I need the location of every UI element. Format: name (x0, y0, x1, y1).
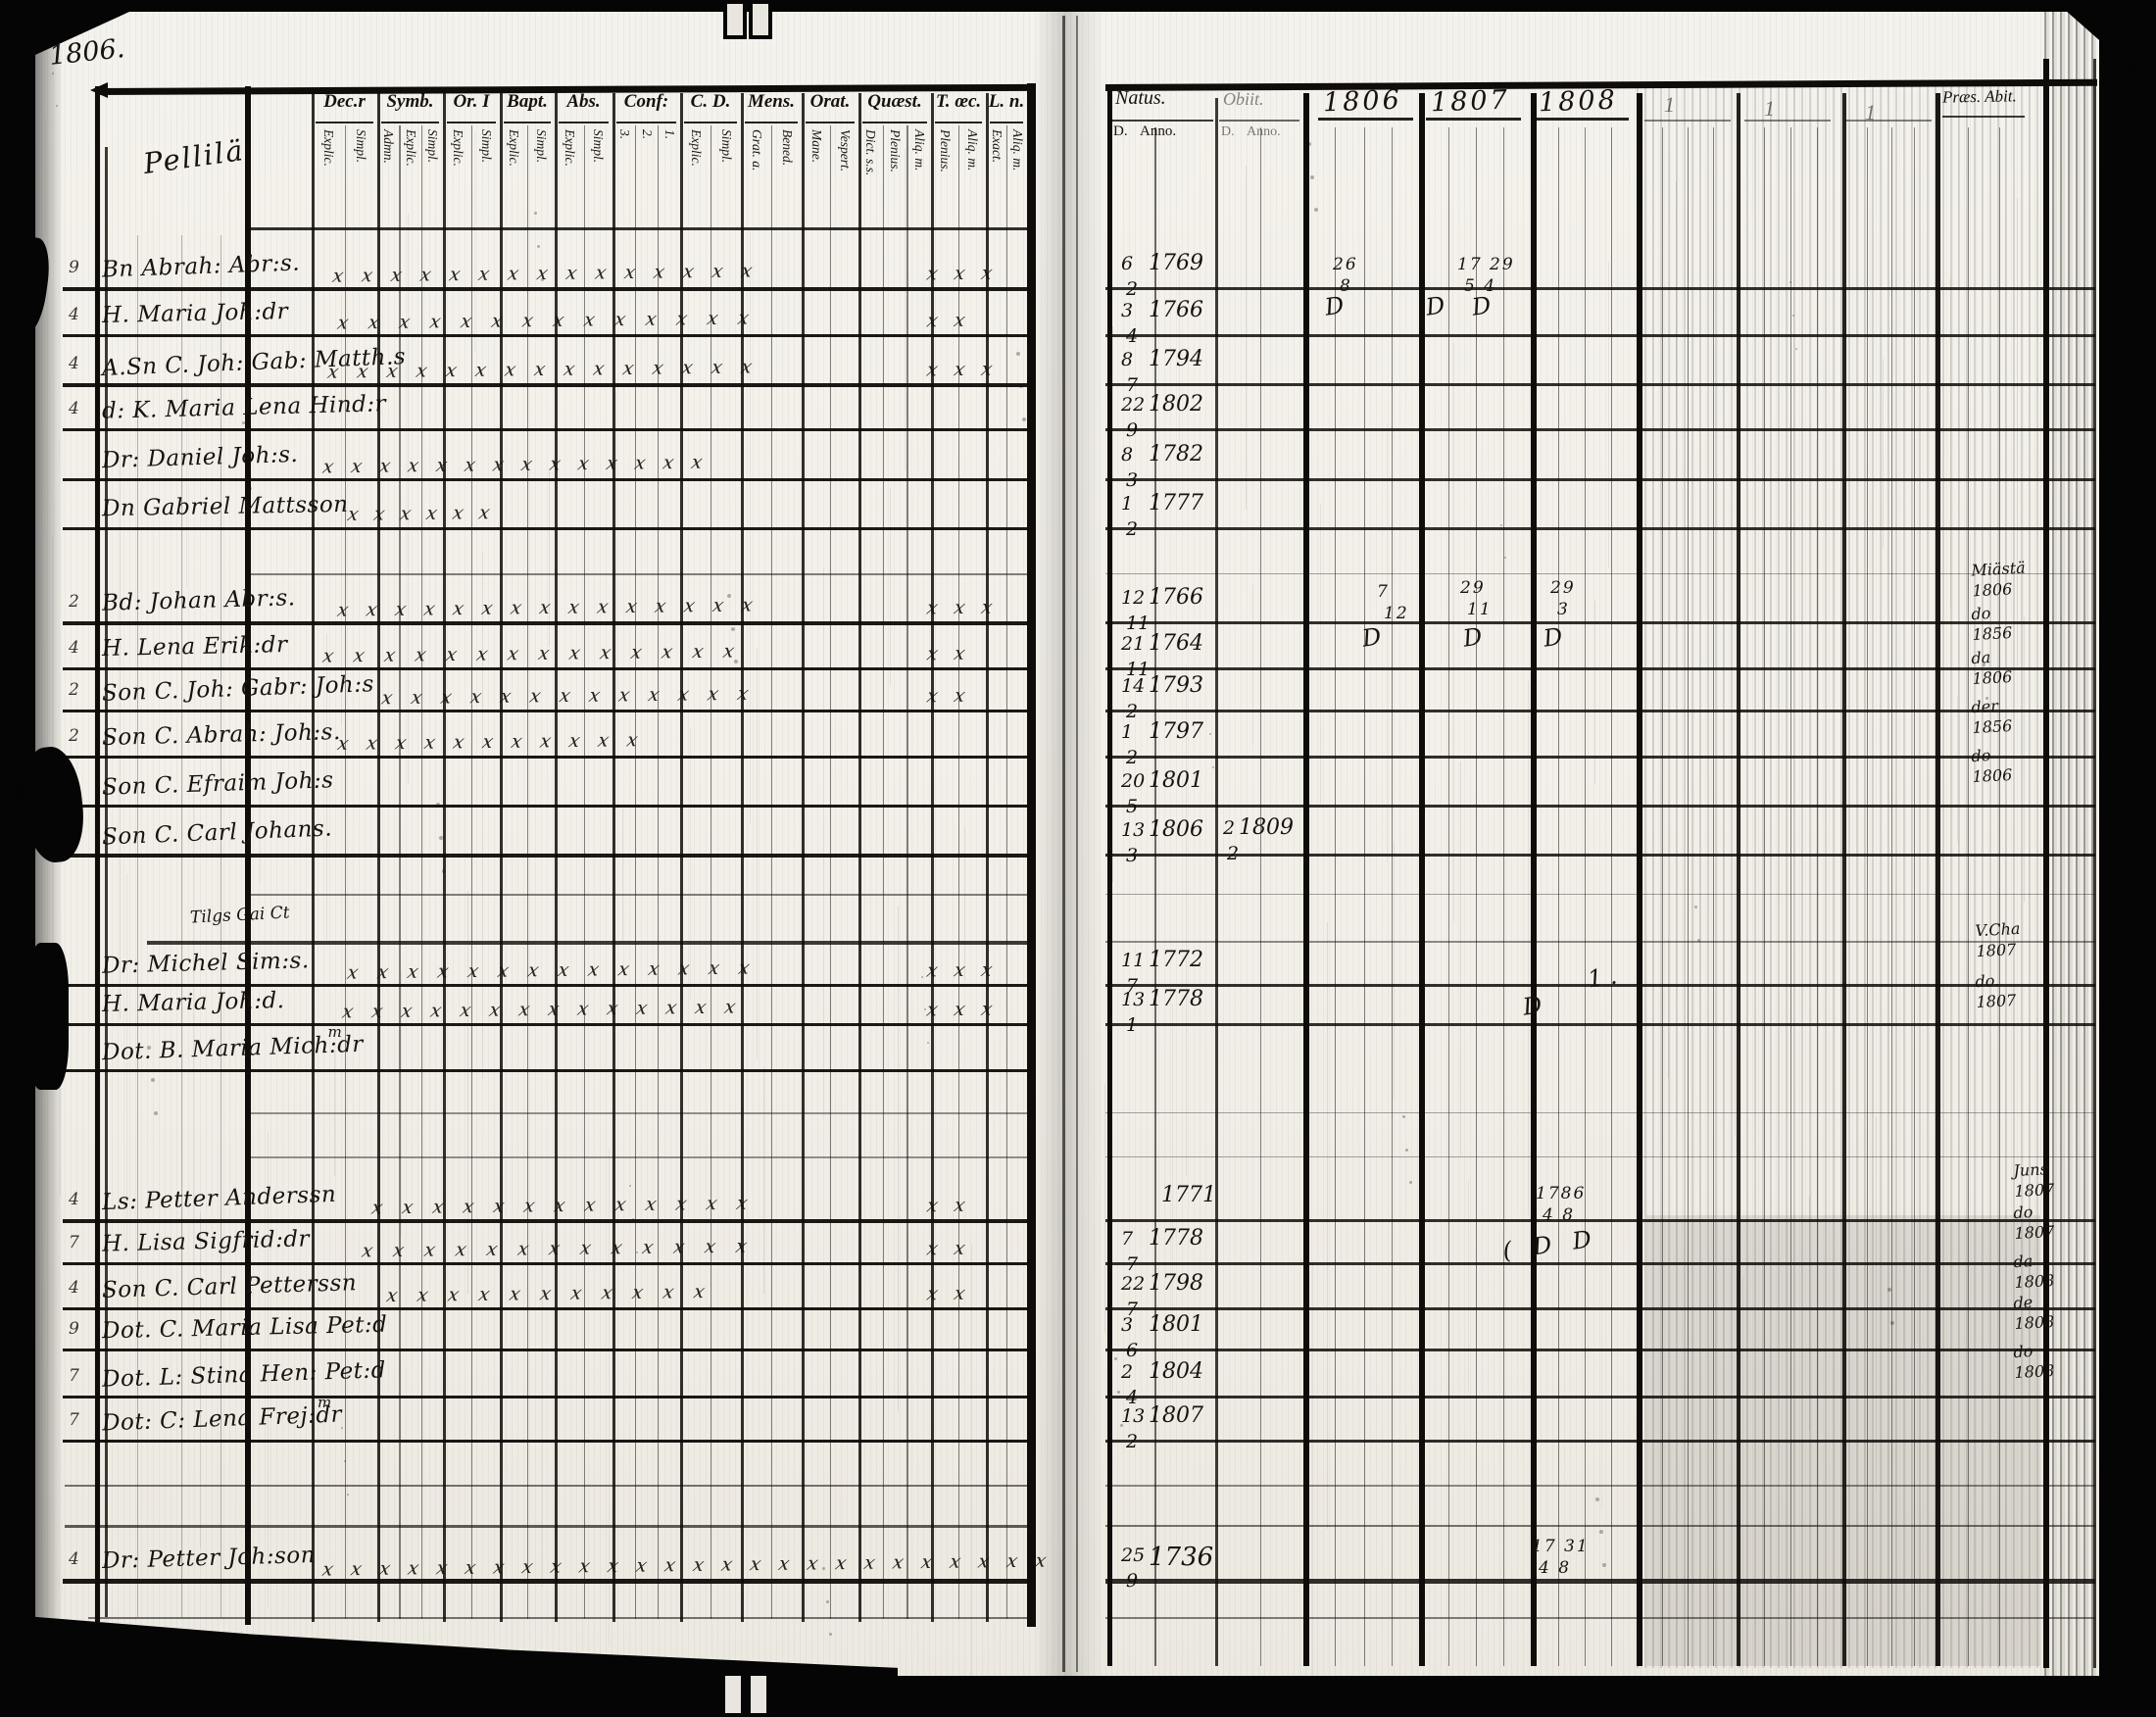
margin-note: do.1807 (1975, 969, 2017, 1012)
year-underline (1534, 118, 1629, 121)
year-column-border (1842, 93, 1846, 1666)
subcolumn-rule (1392, 127, 1393, 1666)
attendance-marks: xxxxxxxxxxxxxx (321, 642, 757, 665)
margin-note-line: Juns (2013, 1158, 2054, 1181)
scan-speck (927, 1042, 929, 1044)
subcolumn-rule (1585, 127, 1586, 1666)
birth-year: 1804 (1149, 1361, 1203, 1383)
column-subheader: Simpl. (533, 129, 549, 220)
attendance-marks-tail: xxx (925, 360, 1010, 379)
birth-day: 20 (1121, 772, 1145, 791)
scan-speck (1405, 1149, 1408, 1152)
ledger-rule (1105, 1485, 2095, 1487)
cell-date-top: 26 (1333, 257, 1358, 273)
scan-streak (549, 471, 550, 647)
row-baseline (1105, 621, 2095, 624)
row-margin-number: 2 (69, 594, 79, 611)
ledger-flourish-mark: D (1461, 623, 1490, 650)
column-subheader: Admn. (380, 129, 396, 220)
obiit-column-header: Obiit. (1223, 90, 1264, 108)
person-name: Bn Abrah: Abr:s. (102, 252, 301, 281)
scan-speck (151, 1078, 155, 1082)
row-baseline (63, 984, 1029, 987)
farm-group-heading: Tilgs Gai Ct (190, 905, 290, 926)
attendance-marks: xxxxxxxxxxxxx (370, 1195, 769, 1218)
ledger-rule (1105, 1156, 2095, 1157)
column-subheader: Explic. (506, 129, 521, 220)
scan-streak (898, 907, 899, 1411)
birth-year: 1802 (1149, 394, 1203, 416)
header-underline (316, 122, 373, 123)
attendance-marks: xxxxxx (346, 504, 508, 524)
row-baseline (63, 527, 1029, 530)
margin-note: do1856 (1971, 602, 2013, 645)
birth-day: 7 (1121, 1230, 1133, 1249)
row-baseline (1105, 1262, 2095, 1265)
margin-note: da1806 (1971, 646, 2013, 689)
scan-streak (1186, 664, 1187, 1176)
birth-year: 1794 (1149, 349, 1203, 370)
scan-streak (474, 133, 475, 353)
row-baseline (1105, 710, 2095, 712)
scan-speck (1310, 175, 1314, 179)
birth-year: 1793 (1149, 675, 1203, 697)
scan-streak (1528, 681, 1529, 1215)
birth-day: 13 (1121, 991, 1145, 1009)
attendance-marks-tail: xxx (925, 1000, 1010, 1019)
scan-speck (1314, 208, 1318, 212)
scan-speck (826, 1600, 829, 1603)
margin-note-line: do (2013, 1201, 2054, 1223)
scan-speck (1694, 906, 1697, 908)
margin-note-line: da (1971, 646, 2012, 668)
scan-speck (541, 278, 544, 281)
margin-note-line: 1856 (1972, 622, 2013, 645)
birth-year: 1798 (1149, 1273, 1203, 1295)
natus-column-header: Natus. (1115, 88, 1166, 108)
ledger-rule (65, 1485, 1027, 1487)
row-margin-number: 4 (69, 1280, 79, 1297)
gutter-fold-line (1076, 16, 1078, 1672)
scan-streak (615, 391, 616, 706)
column-subheader: Simpl. (478, 129, 494, 220)
village-name: Pellilä (141, 136, 246, 178)
ledger-rule (1105, 941, 2095, 943)
column-header-8: Mens. (741, 92, 802, 111)
row-baseline (1105, 805, 2095, 808)
column-header-10: Quæst. (858, 92, 931, 111)
scanned-parish-register-spread: 1806. Pellilä Tilgs Gai Ct Natus. D. Ann… (0, 0, 2156, 1717)
person-name: H. Lisa Sigfrid:dr (102, 1228, 311, 1255)
scan-streak (763, 1067, 764, 1294)
row-baseline (1105, 756, 2095, 759)
scan-streak (1668, 939, 1669, 1078)
year-column-border (1935, 93, 1940, 1666)
person-name: Ls: Petter Anderssn (102, 1184, 337, 1214)
column-subheader: Vespert. (837, 129, 853, 220)
scan-speck (1599, 1530, 1603, 1534)
ledger-flourish-mark: 1. (1587, 963, 1626, 992)
cell-date-top: 17 29 (1457, 257, 1515, 273)
row-baseline (1105, 1219, 2095, 1222)
scan-speck (636, 1251, 638, 1253)
subcolumn-rule (1817, 127, 1818, 1666)
margin-note-line: do (2013, 1340, 2054, 1362)
row-baseline (1105, 854, 2095, 857)
margin-note-line: 1808 (2014, 1360, 2055, 1383)
birth-day: 6 (1121, 255, 1133, 273)
cell-date-top: 29 (1460, 580, 1486, 597)
scan-speck (1409, 1181, 1412, 1184)
column-header-4: Bapt. (500, 92, 555, 111)
attendance-marks: xxxxxxxxxxxxxx (321, 454, 722, 477)
person-name: Dn Gabriel Mattsson (102, 494, 349, 520)
scan-streak (186, 375, 187, 588)
person-name: Son C. Carl Petterssn (102, 1272, 358, 1302)
scan-speck (537, 245, 540, 248)
row-baseline (63, 383, 1029, 387)
person-name: H. Lena Erik:dr (102, 634, 288, 661)
birth-year: 1778 (1149, 989, 1203, 1010)
subcolumn-rule (1558, 127, 1559, 1666)
scan-streak (341, 294, 342, 725)
row-baseline (63, 710, 1029, 712)
birth-year: 1772 (1149, 950, 1203, 971)
year-header: 1806 (1323, 87, 1403, 117)
ledger-flourish-mark: D (1470, 292, 1498, 319)
row-baseline (63, 1219, 1029, 1223)
row-baseline (63, 1069, 1029, 1072)
ledger-rule (147, 941, 1027, 945)
attendance-marks: xxxxxxxxxxxxxxx (331, 262, 773, 285)
obiit-day-subheader: D. (1221, 125, 1235, 139)
person-name: Dot: C: Lena Frej:dr (102, 1404, 343, 1436)
column-subheader: Explic. (403, 129, 418, 220)
scan-streak (334, 1052, 335, 1176)
subcolumn-rule (1867, 127, 1868, 1666)
ledger-flourish-mark: D (1323, 292, 1351, 319)
scan-streak (1468, 1180, 1469, 1392)
scan-streak (830, 987, 831, 1352)
ghost-year-header: 1 (1764, 98, 1775, 120)
attendance-marks-tail: xx (925, 1197, 983, 1216)
binding-clasp-top-right (749, 0, 772, 39)
row-baseline (63, 1440, 1029, 1443)
row-baseline (63, 805, 1029, 808)
row-baseline (1105, 287, 2095, 290)
scan-streak (757, 649, 758, 1058)
row-margin-number: 4 (69, 356, 79, 372)
scan-streak (690, 729, 691, 1000)
row-margin-number: 9 (69, 260, 79, 276)
year-column-border (1419, 93, 1425, 1666)
row-margin-number: 7 (69, 1235, 79, 1251)
row-baseline (63, 1579, 1029, 1584)
scan-speck (1697, 939, 1700, 942)
birth-day: 25 (1121, 1546, 1145, 1565)
scan-streak (1608, 262, 1609, 568)
scan-streak (260, 713, 261, 882)
scan-speck (734, 660, 738, 663)
subcolumn-rule (1790, 127, 1791, 1666)
column-header-1: Dec.r (312, 92, 377, 111)
attendance-marks-tail: xx (925, 1240, 983, 1259)
natus-anno-subheader: Anno. (1140, 124, 1176, 139)
scan-speck (1209, 733, 1211, 735)
birth-day: 22 (1121, 396, 1145, 415)
column-subheader: Explic. (562, 129, 577, 220)
margin-note: V.Cha1807 (1975, 918, 2022, 961)
scan-speck (1795, 348, 1797, 350)
name-superscript: m (328, 1025, 342, 1040)
column-header-5: Abs. (555, 92, 612, 111)
birth-day: 1 (1121, 495, 1133, 514)
death-day: 2 (1223, 819, 1235, 838)
scan-streak (1252, 584, 1253, 745)
header-underline (447, 122, 496, 123)
row-baseline (63, 621, 1029, 625)
row-baseline (63, 1349, 1029, 1351)
subcolumn-rule (1476, 127, 1477, 1666)
cell-date-top: 29 (1550, 580, 1576, 597)
attendance-marks-tail: xx (925, 1285, 983, 1304)
margin-note-line: 1808 (2014, 1311, 2055, 1334)
birth-year: 1766 (1149, 300, 1203, 321)
header-underline (745, 122, 798, 123)
scan-streak (1735, 858, 1736, 1137)
cell-date-top: 17 31 (1532, 1539, 1590, 1555)
header-underline (684, 122, 737, 123)
scan-streak (823, 568, 824, 1117)
scan-streak (1742, 1277, 1743, 1717)
ledger-flourish-mark: D (1521, 992, 1549, 1018)
scan-speck (344, 1460, 346, 1462)
scan-speck (1114, 1357, 1117, 1360)
subcolumn-rule (1364, 127, 1365, 1666)
row-baseline (63, 428, 1029, 431)
birth-day: 8 (1121, 351, 1133, 369)
birth-day: 11 (1121, 952, 1145, 970)
row-baseline (1105, 1023, 2095, 1026)
row-baseline (63, 287, 1029, 291)
natus-day-subheader: D. (1113, 124, 1128, 139)
margin-note-line: 1806 (1972, 666, 2013, 689)
row-baseline (1105, 527, 2095, 530)
birth-year: 1764 (1149, 633, 1203, 655)
row-baseline (1105, 667, 2095, 670)
header-underline (862, 122, 927, 123)
header-underline (806, 122, 855, 123)
scan-streak (1394, 842, 1395, 1098)
margin-note: Juns1807 (2013, 1158, 2055, 1202)
ghost-year-underline (1744, 120, 1831, 122)
birth-day: 14 (1121, 677, 1145, 696)
scan-streak (890, 488, 891, 686)
person-name: Son C. Joh: Gabr: Joh:s (102, 673, 375, 706)
column-subheader: Simpl. (353, 129, 368, 220)
attendance-marks-tail: xx (925, 645, 983, 664)
person-name: Dot. B. Maria Mich:dr (102, 1034, 364, 1064)
scan-streak (1816, 439, 1817, 980)
scan-streak (401, 971, 402, 1235)
scan-streak (326, 633, 327, 941)
column-subheader: 3. (616, 129, 632, 220)
subcolumn-rule (1764, 127, 1765, 1666)
year-column-border (1737, 93, 1740, 1666)
scan-streak (1327, 922, 1328, 1529)
ledger-rule (88, 1617, 1027, 1619)
ledger-rule (1105, 573, 2095, 574)
header-underline (990, 122, 1023, 123)
right-page-edge-line (2093, 59, 2096, 1668)
scan-streak (1112, 326, 1113, 882)
scan-streak (1950, 278, 1951, 608)
column-border (986, 93, 989, 1622)
scan-streak (1179, 246, 1180, 451)
attendance-marks: xxxxxxxxxxx (336, 731, 658, 754)
scan-streak (467, 891, 468, 1294)
subcolumn-rule (1448, 127, 1449, 1666)
scan-speck (1602, 1563, 1606, 1567)
scan-streak (1594, 601, 1595, 784)
ledger-flourish-mark: D (1360, 623, 1389, 650)
row-baseline (63, 854, 1029, 858)
header-underline (381, 122, 439, 123)
birth-year: 1777 (1149, 493, 1203, 515)
column-subheader: 1. (661, 129, 677, 220)
margin-note: Miästä1806 (1971, 558, 2027, 602)
cell-date-bottom: 12 (1384, 606, 1409, 622)
subcolumn-rule (1503, 127, 1504, 1666)
birth-year: 1806 (1149, 819, 1203, 841)
subcolumn-rule (1914, 127, 1915, 1666)
margin-note-line: do (1971, 602, 2012, 624)
birth-day: 13 (1121, 1407, 1145, 1426)
margin-note-line: der (1971, 695, 2012, 717)
attendance-marks-tail: xxx (925, 960, 1010, 980)
row-baseline (1105, 428, 2095, 431)
scan-speck (1307, 142, 1311, 146)
scan-speck (52, 73, 54, 74)
margin-note-line: 1806 (1972, 764, 2013, 787)
column-header-7: C. D. (680, 92, 741, 111)
header-underline (559, 122, 609, 123)
scan-streak (1535, 1100, 1536, 1450)
margin-note-line: 1808 (2014, 1270, 2055, 1293)
column-header-9: Orat. (802, 92, 858, 111)
birth-day: 2 (1121, 1363, 1133, 1382)
scan-streak (268, 1132, 269, 1607)
margin-note-line: V.Cha (1975, 918, 2021, 941)
ledger-flourish-mark: D (1424, 292, 1452, 319)
attendance-marks: xxxxxxxxxxx (385, 1283, 727, 1305)
row-margin-number: 2 (69, 682, 79, 699)
binding-clasp-bottom-right (747, 1672, 770, 1717)
ledger-rule (1105, 894, 2095, 895)
row-baseline (1105, 1396, 2095, 1398)
gutter-fold-line (1062, 16, 1065, 1672)
person-name: Dr: Petter Joh:son (102, 1545, 317, 1573)
ledger-rule (65, 1525, 1027, 1528)
scan-speck (439, 836, 443, 840)
scan-speck (822, 1567, 825, 1570)
margin-note: do1806 (1971, 744, 2013, 787)
column-subheader: Explic. (688, 129, 704, 220)
scan-speck (56, 105, 58, 107)
scan-speck (1792, 315, 1794, 317)
scan-speck (1212, 766, 1214, 768)
birth-year: 1769 (1149, 253, 1203, 274)
attendance-marks: xxxxxxxxxxxxxx (341, 998, 757, 1021)
subcolumn-rule (1688, 127, 1689, 1666)
birth-day: 1 (1121, 723, 1133, 742)
row-margin-number: 2 (69, 728, 79, 745)
birth-day: 12 (1121, 589, 1145, 608)
scan-streak (622, 809, 623, 941)
attendance-marks: xxxxxxxxxxxxxx (336, 309, 771, 332)
scan-speck (731, 627, 735, 631)
scan-streak (2017, 198, 2018, 666)
row-baseline (63, 667, 1029, 670)
scan-blob-left-3 (27, 943, 69, 1090)
column-header-3: Or. I (443, 92, 500, 111)
right-page-edge-border (2043, 59, 2049, 1668)
scan-streak (126, 874, 127, 1254)
scan-speck (1887, 1288, 1891, 1292)
year-underline (1426, 118, 1521, 121)
praes-abit-header: Præs. Abit. (1942, 87, 2017, 105)
scan-speck (249, 487, 252, 490)
ledger-rule (1105, 1525, 2095, 1527)
birth-year: 1797 (1149, 721, 1203, 743)
column-subheader: Plenius. (937, 129, 953, 220)
subcolumn-rule (1891, 127, 1892, 1666)
row-baseline (1105, 334, 2095, 337)
person-name: Son C. Efraim Joh:s (102, 769, 334, 799)
year-underline (1318, 118, 1413, 121)
ledger-content: 1806. Pellilä Tilgs Gai Ct Natus. D. Ann… (0, 0, 2156, 1717)
birth-day: 3 (1121, 302, 1133, 320)
scan-streak (1172, 1004, 1173, 1392)
scan-streak (1312, 1261, 1313, 1717)
margin-note: da1808 (2013, 1250, 2055, 1293)
cell-date-bottom: 11 (1467, 602, 1493, 618)
row-baseline (63, 478, 1029, 481)
scan-streak (1876, 1116, 1877, 1490)
scan-speck (1022, 417, 1026, 421)
birth-day: 13 (1121, 821, 1145, 840)
column-subheader: Simpl. (718, 129, 734, 220)
scan-speck (921, 976, 923, 978)
row-baseline (1105, 478, 2095, 481)
scan-speck (154, 1111, 158, 1115)
margin-note-line: 1807 (2014, 1179, 2055, 1202)
cell-date-bottom: 4 8 (1543, 1207, 1575, 1224)
column-subheader: Grat. a. (749, 129, 764, 220)
scan-speck (1402, 1115, 1405, 1118)
birth-day: 21 (1121, 635, 1145, 654)
scan-streak (1809, 1197, 1810, 1431)
subcolumn-rule (1713, 127, 1714, 1666)
obiit-border (1215, 98, 1218, 1666)
margin-note-line: do. (1975, 969, 2016, 992)
row-margin-number: 4 (69, 1551, 79, 1568)
column-subheader: Explic. (450, 129, 465, 220)
scan-speck (829, 1633, 832, 1636)
birth-day: 22 (1121, 1275, 1145, 1294)
scan-speck (1019, 384, 1023, 388)
column-subheader: Mane. (808, 129, 824, 220)
